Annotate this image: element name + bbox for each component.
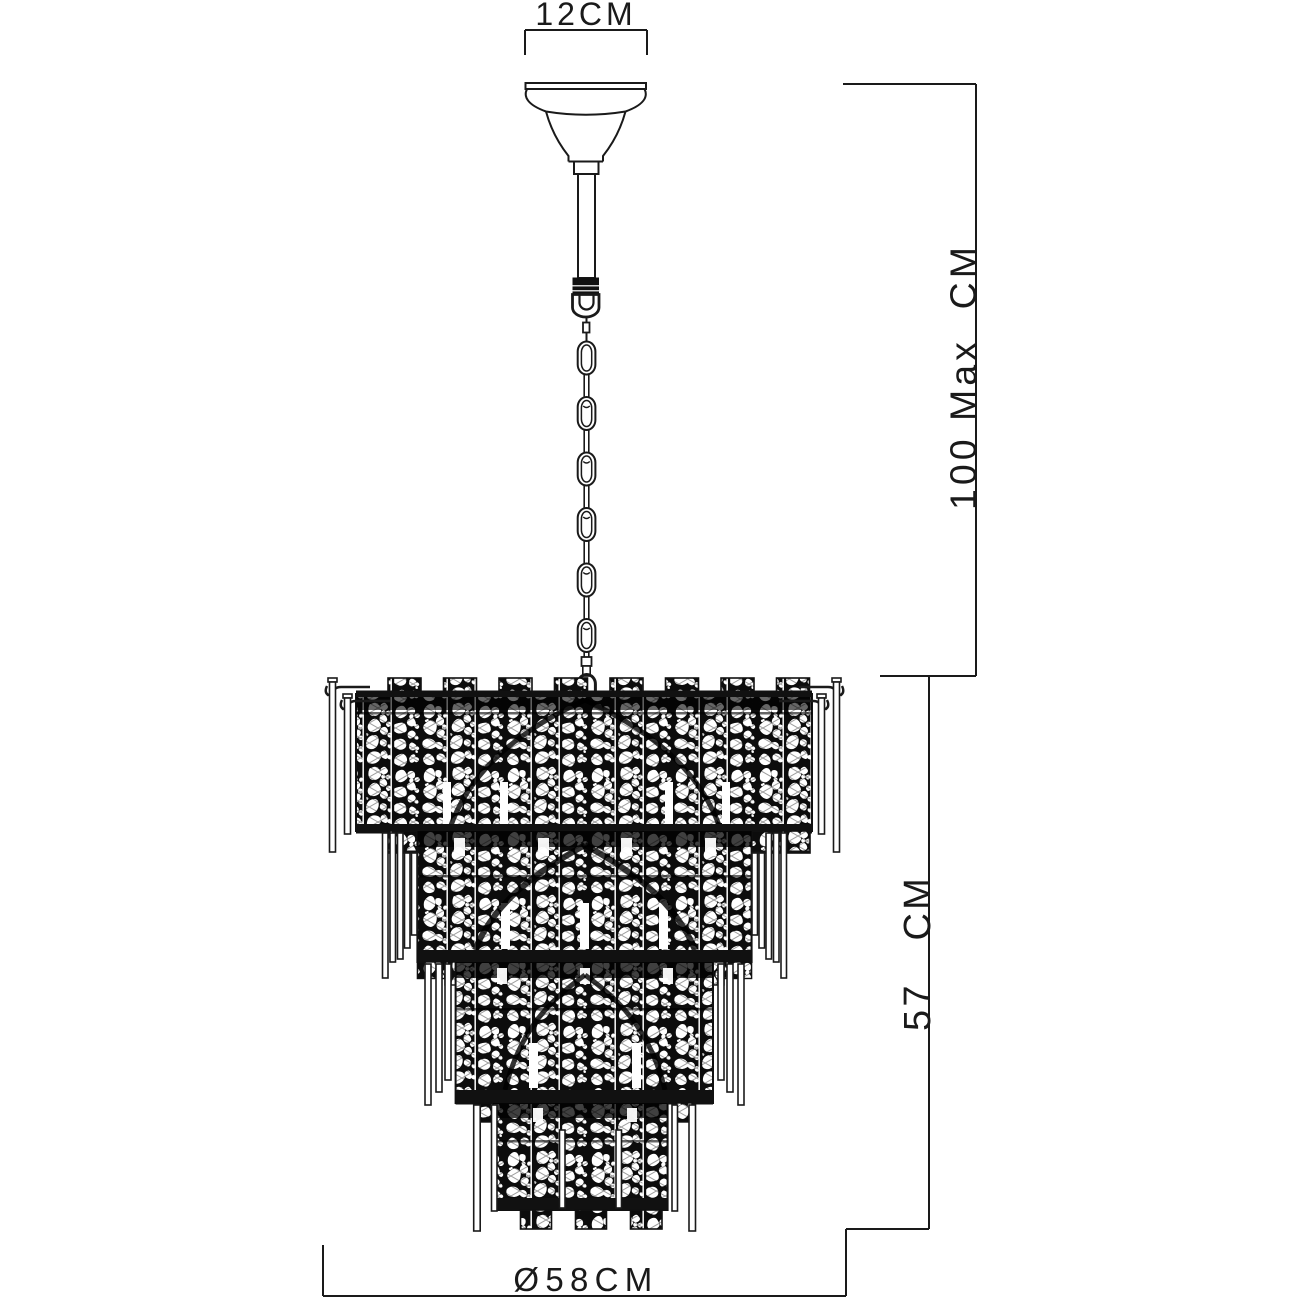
svg-text:Ø58CM: Ø58CM — [513, 1261, 658, 1298]
svg-text:12CM: 12CM — [535, 0, 636, 32]
svg-text:100 Max CM: 100 Max CM — [942, 243, 984, 510]
svg-text:57 CM: 57 CM — [897, 875, 939, 1031]
